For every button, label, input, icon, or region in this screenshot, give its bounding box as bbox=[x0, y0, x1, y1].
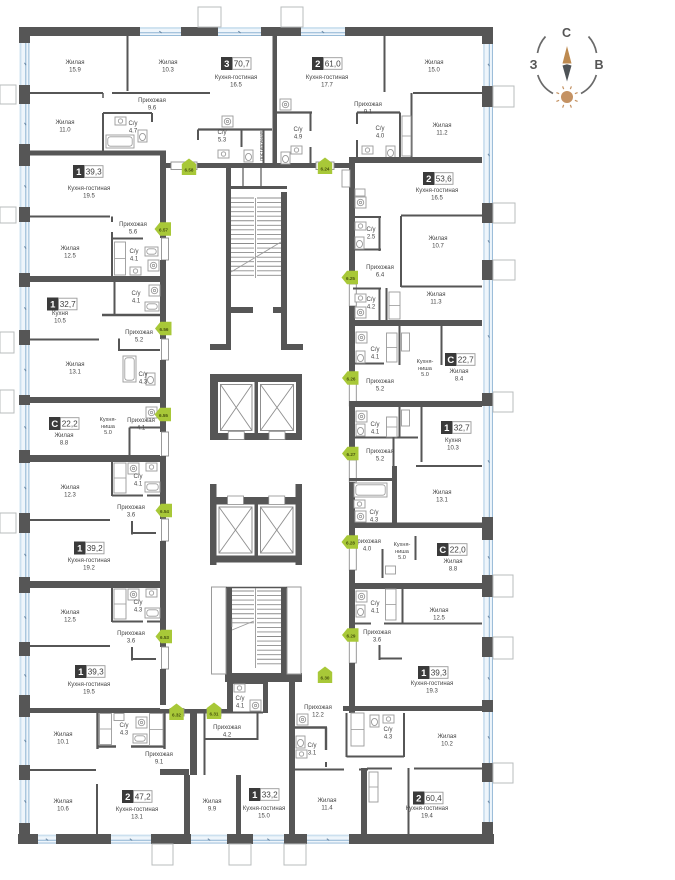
svg-text:С/у4.1: С/у4.1 bbox=[371, 601, 380, 615]
svg-text:С: С bbox=[439, 545, 446, 556]
svg-text:1: 1 bbox=[444, 423, 450, 434]
svg-text:2: 2 bbox=[416, 793, 421, 804]
svg-text:22,7: 22,7 bbox=[458, 356, 474, 365]
svg-text:1: 1 bbox=[50, 299, 56, 310]
svg-text:2: 2 bbox=[125, 792, 130, 803]
svg-text:33,2: 33,2 bbox=[262, 791, 278, 800]
svg-text:32,7: 32,7 bbox=[454, 424, 470, 433]
svg-text:32,7: 32,7 bbox=[60, 300, 76, 309]
svg-text:2: 2 bbox=[426, 174, 431, 185]
svg-text:С/у4.1: С/у4.1 bbox=[130, 249, 139, 263]
svg-text:С/у4.1: С/у4.1 bbox=[236, 696, 245, 710]
svg-text:С/у4.3: С/у4.3 bbox=[370, 510, 379, 524]
svg-text:6.25: 6.25 bbox=[346, 276, 355, 281]
svg-text:С/у2.5: С/у2.5 bbox=[367, 227, 376, 241]
svg-text:С: С bbox=[51, 419, 58, 430]
svg-text:6.24: 6.24 bbox=[321, 167, 330, 172]
svg-text:5.0: 5.0 bbox=[398, 555, 406, 561]
svg-text:Кухня-ниша: Кухня-ниша bbox=[417, 359, 434, 372]
svg-text:С/у4.0: С/у4.0 bbox=[376, 126, 385, 140]
svg-text:С/у4.3: С/у4.3 bbox=[384, 727, 393, 741]
svg-text:1: 1 bbox=[78, 667, 84, 678]
svg-text:39,3: 39,3 bbox=[431, 669, 447, 678]
svg-text:С/у4.9: С/у4.9 bbox=[294, 127, 303, 141]
svg-text:С/у4.3: С/у4.3 bbox=[120, 723, 129, 737]
svg-text:Кухня-ниша: Кухня-ниша bbox=[100, 417, 117, 430]
svg-text:С/у4.3: С/у4.3 bbox=[139, 372, 148, 386]
svg-text:1: 1 bbox=[77, 543, 83, 554]
svg-text:6.32: 6.32 bbox=[172, 713, 181, 718]
svg-text:6.56: 6.56 bbox=[160, 327, 169, 332]
svg-text:Кухня10.3: Кухня10.3 bbox=[445, 438, 461, 452]
svg-text:С/у3.1: С/у3.1 bbox=[308, 743, 317, 757]
svg-text:2: 2 bbox=[315, 59, 320, 70]
svg-text:3: 3 bbox=[224, 59, 229, 70]
svg-text:39,2: 39,2 bbox=[87, 544, 103, 553]
svg-text:6.29: 6.29 bbox=[347, 633, 356, 638]
svg-text:С/у4.3: С/у4.3 bbox=[134, 600, 143, 614]
svg-text:6.55: 6.55 bbox=[159, 413, 168, 418]
svg-text:З: З bbox=[530, 58, 538, 72]
svg-text:Кухня10.5: Кухня10.5 bbox=[52, 311, 68, 325]
svg-text:6.26: 6.26 bbox=[347, 376, 356, 381]
svg-text:6.27: 6.27 bbox=[347, 452, 356, 457]
svg-text:39,3: 39,3 bbox=[86, 168, 102, 177]
svg-text:6.28: 6.28 bbox=[346, 540, 355, 545]
svg-text:5.0: 5.0 bbox=[104, 430, 112, 436]
svg-text:С/у4.1: С/у4.1 bbox=[371, 422, 380, 436]
svg-text:6.31: 6.31 bbox=[210, 712, 219, 717]
svg-text:С: С bbox=[562, 26, 571, 40]
svg-text:С/у4.7: С/у4.7 bbox=[129, 121, 138, 135]
svg-text:70,7: 70,7 bbox=[234, 60, 250, 69]
svg-text:47,2: 47,2 bbox=[135, 793, 151, 802]
svg-text:С/у4.1: С/у4.1 bbox=[132, 291, 141, 305]
svg-text:6.57: 6.57 bbox=[159, 227, 168, 232]
svg-text:22,0: 22,0 bbox=[450, 546, 466, 555]
svg-text:61,0: 61,0 bbox=[325, 60, 341, 69]
svg-text:1: 1 bbox=[421, 668, 427, 679]
svg-text:С: С bbox=[447, 355, 454, 366]
svg-text:6.30: 6.30 bbox=[321, 676, 330, 681]
svg-text:В: В bbox=[594, 58, 603, 72]
svg-text:С/у4.2: С/у4.2 bbox=[367, 297, 376, 311]
svg-text:53,6: 53,6 bbox=[436, 175, 452, 184]
svg-text:постирочная: постирочная bbox=[259, 131, 265, 161]
svg-text:6.54: 6.54 bbox=[160, 509, 169, 514]
svg-text:6.53: 6.53 bbox=[160, 635, 169, 640]
svg-text:22,2: 22,2 bbox=[62, 420, 78, 429]
svg-text:5.0: 5.0 bbox=[421, 372, 429, 378]
svg-text:С/у4.1: С/у4.1 bbox=[371, 347, 380, 361]
svg-text:39,3: 39,3 bbox=[88, 668, 104, 677]
svg-text:С/у5.3: С/у5.3 bbox=[218, 130, 227, 144]
svg-text:С/у4.1: С/у4.1 bbox=[134, 474, 143, 488]
svg-text:60,4: 60,4 bbox=[426, 794, 442, 803]
svg-text:Кухня-ниша: Кухня-ниша bbox=[394, 542, 411, 555]
svg-text:6.58: 6.58 bbox=[185, 168, 194, 173]
svg-text:1: 1 bbox=[252, 790, 258, 801]
svg-text:1: 1 bbox=[76, 167, 82, 178]
